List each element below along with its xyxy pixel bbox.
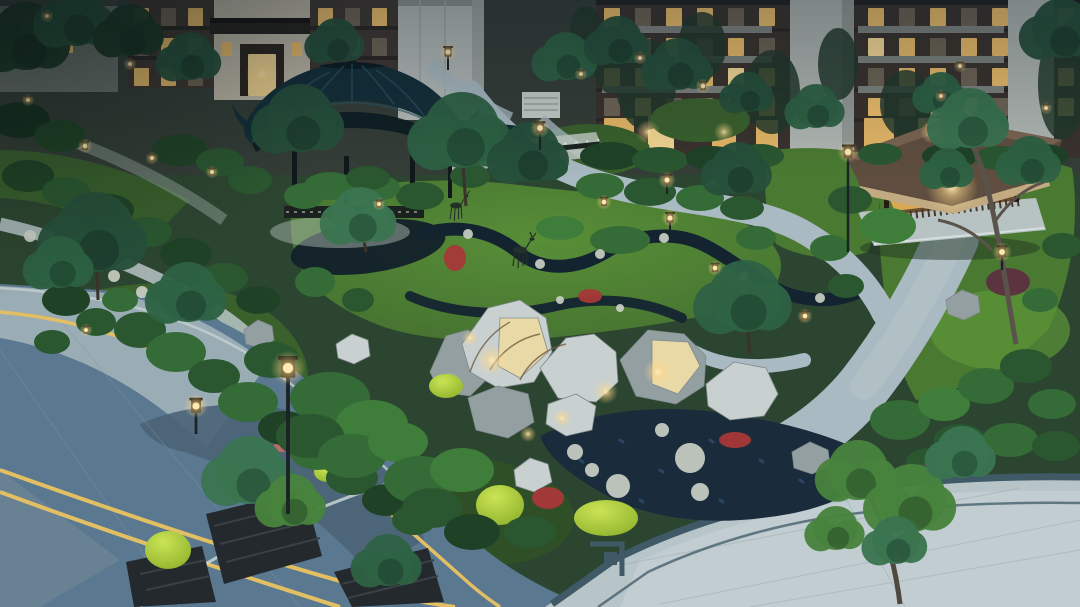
- flower-patch: [532, 487, 564, 509]
- shrub: [444, 514, 500, 550]
- shrub: [368, 422, 428, 462]
- shrub: [720, 196, 764, 220]
- garden-lantern: [797, 308, 812, 323]
- lamp-light: [999, 249, 1005, 255]
- garden-lantern: [596, 194, 611, 209]
- garden-scene: Dusk aerial view of a Chinese-style resi…: [0, 0, 1080, 607]
- stepping-stone: [659, 233, 669, 243]
- tree-foliage-shade: [827, 527, 849, 549]
- tree-foliage-shade: [886, 539, 910, 563]
- warm-light-glow: [594, 380, 618, 404]
- shrub: [828, 274, 864, 298]
- garden-lantern: [707, 260, 722, 275]
- shrub: [396, 182, 444, 210]
- chartreuse-shrub: [429, 374, 463, 398]
- stepping-stone: [535, 259, 545, 269]
- stepping-stone: [595, 249, 605, 259]
- warm-light-glow: [476, 344, 508, 376]
- stepping-stone: [606, 474, 630, 498]
- stepping-stone: [463, 229, 473, 239]
- tree-foliage-shade: [378, 559, 404, 585]
- photo-stage: Dusk aerial view of a Chinese-style resi…: [0, 0, 1080, 607]
- flower-patch: [719, 432, 751, 448]
- lamp-light: [84, 328, 88, 332]
- stepping-stone: [616, 304, 624, 312]
- shrub: [1032, 431, 1080, 461]
- warm-light-glow: [553, 409, 571, 427]
- lamp-light: [602, 200, 606, 204]
- shrub: [860, 208, 916, 244]
- lamp-light: [667, 215, 672, 220]
- tree-foliage-shade: [731, 294, 767, 330]
- shrub: [536, 216, 584, 240]
- tree-foliage-shade: [952, 451, 978, 477]
- shrub: [810, 235, 850, 261]
- warm-light-glow: [520, 426, 536, 442]
- flower-patch: [444, 245, 466, 271]
- shrub: [34, 330, 70, 354]
- garden-lantern: [79, 323, 92, 336]
- stepping-stone: [691, 483, 709, 501]
- dusk-shade-corner: [0, 0, 380, 300]
- stepping-stone: [585, 463, 599, 477]
- stepping-stone: [655, 423, 669, 437]
- shrub: [504, 516, 556, 548]
- shrub: [430, 448, 494, 492]
- stepping-stone: [567, 444, 583, 460]
- warm-light-glow: [644, 358, 672, 386]
- shrub: [1000, 349, 1052, 383]
- flower-patch: [578, 289, 602, 303]
- stepping-stone: [815, 293, 825, 303]
- shrub: [828, 186, 872, 214]
- stepping-stone: [556, 296, 564, 304]
- shrub: [1028, 389, 1076, 419]
- fret-square: [604, 552, 617, 565]
- tree-foliage-shade: [282, 499, 308, 525]
- shrub: [1022, 288, 1058, 312]
- shrub: [736, 226, 776, 250]
- chartreuse-shrub: [574, 500, 638, 536]
- chartreuse-shrub: [145, 531, 191, 569]
- lamp-light: [192, 402, 199, 409]
- lamp-light: [713, 266, 717, 270]
- lamp-light: [803, 314, 807, 318]
- lamp-light: [283, 363, 293, 373]
- warm-light-glow: [462, 330, 478, 346]
- stepping-stone: [675, 443, 705, 473]
